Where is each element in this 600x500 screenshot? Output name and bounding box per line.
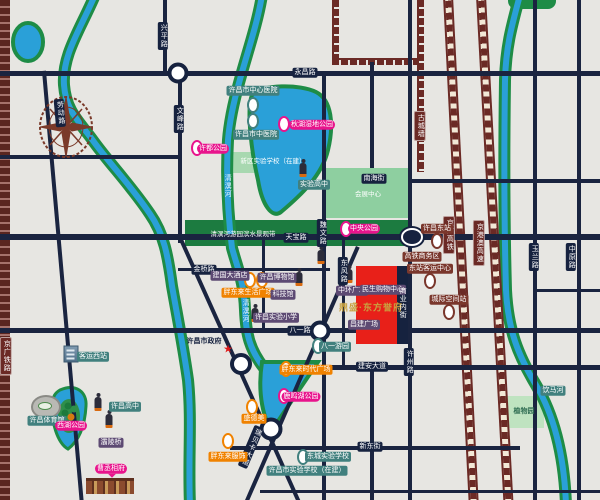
- poi-label[interactable]: 东站客运中心: [407, 264, 453, 274]
- park-trees-icon: [65, 403, 72, 410]
- poi-label[interactable]: 灞陵桥: [99, 438, 124, 448]
- poi-label[interactable]: 城际空间站: [430, 295, 469, 305]
- poi-label[interactable]: 植物园: [512, 407, 537, 417]
- road-label: 玉兰路: [529, 243, 539, 271]
- road-label: 兴平路: [158, 22, 168, 50]
- road: [533, 289, 600, 292]
- road: [260, 490, 600, 493]
- poi-label[interactable]: 许昌高中: [109, 402, 141, 412]
- river-label: 清潩河: [222, 172, 232, 200]
- government-label[interactable]: 许昌市政府: [185, 337, 224, 347]
- road-label: 中原路: [566, 243, 576, 271]
- city-wall: [417, 0, 424, 172]
- poi-label[interactable]: 许昌东站: [421, 224, 453, 234]
- shop-marker-icon[interactable]: [246, 399, 258, 415]
- station-marker-icon[interactable]: [424, 273, 436, 289]
- road-label: 天宝路: [284, 233, 309, 243]
- road: [178, 71, 182, 243]
- project-name-label[interactable]: 鼎盛·东方誉府: [337, 302, 405, 315]
- poi-label[interactable]: 高铁商务区: [403, 252, 442, 262]
- road: [408, 179, 600, 183]
- station-marker-icon[interactable]: [443, 304, 455, 320]
- statue-icon: [296, 272, 303, 286]
- compass-icon: [35, 91, 97, 163]
- poi-label[interactable]: 科技馆: [271, 290, 296, 300]
- road-label: 东风路: [338, 257, 348, 285]
- road-label: 魏文路: [317, 219, 327, 247]
- road-label: 八一路: [288, 326, 313, 336]
- poi-label[interactable]: 东城实验学校: [305, 452, 351, 462]
- poi-label[interactable]: 西湖公园: [55, 421, 87, 431]
- road: [577, 0, 581, 500]
- poi-label[interactable]: 许昌市中心医院: [227, 86, 280, 96]
- road: [408, 0, 412, 500]
- road-label: 许州路: [404, 348, 414, 376]
- poi-label[interactable]: 秋湖湿地公园: [289, 120, 335, 130]
- poi-label[interactable]: 八一游园: [319, 342, 351, 352]
- guanyu-statue-icon: [106, 414, 113, 428]
- station-marker-icon[interactable]: [431, 233, 443, 249]
- wall-label: 古城墙: [414, 111, 426, 141]
- roundabout: [230, 353, 252, 375]
- poi-label[interactable]: 昌建广场: [348, 320, 380, 330]
- roundabout: [168, 63, 189, 84]
- road: [370, 368, 374, 500]
- area-label: 清潩河游园滨水景观带: [209, 230, 278, 240]
- road-label: 新东街: [358, 442, 383, 452]
- poi-label[interactable]: 胖东来时代广场: [280, 365, 333, 375]
- poi-label[interactable]: 客运西站: [77, 352, 109, 362]
- city-map: 永昌路天宝路八一路建安大道新东街金桥路南海街兴平路劳动路文峰路魏文路东风路许州路…: [0, 0, 600, 500]
- poi-label[interactable]: 许昌市中医院: [233, 130, 279, 140]
- poi-label[interactable]: 鹿鸣湖公园: [282, 392, 321, 402]
- hospital-marker-icon[interactable]: [247, 113, 259, 129]
- train-station-icon[interactable]: [401, 228, 423, 246]
- city-wall: [332, 0, 339, 62]
- hospital-marker-icon[interactable]: [247, 97, 259, 113]
- poi-label[interactable]: 胖东来服饰: [209, 452, 248, 462]
- road-label: 南海街: [362, 174, 387, 184]
- statue-icon: [95, 397, 102, 411]
- area-label: 会展中心: [353, 190, 383, 200]
- shop-marker-icon[interactable]: [222, 433, 234, 449]
- area-label: 新区实验学校（在建）: [239, 157, 308, 167]
- poi-label[interactable]: 中央公园: [348, 224, 380, 234]
- rail-label: 京港澳高速: [473, 220, 485, 266]
- poi-label[interactable]: 建国大酒店: [211, 271, 250, 281]
- government-star-icon: ★: [223, 345, 233, 356]
- river-label: 清潩河: [240, 297, 250, 325]
- street-label: 商业内街: [397, 285, 407, 321]
- statue-icon: [318, 250, 325, 264]
- road-label: 永昌路: [293, 68, 318, 78]
- road-label: 建安大道: [356, 362, 388, 372]
- road: [322, 71, 326, 500]
- poi-label[interactable]: 许昌市实验学校（在建）: [267, 466, 348, 476]
- road: [370, 62, 374, 168]
- poi-label[interactable]: 胖东来生活广场: [222, 288, 275, 298]
- poi-label[interactable]: 曹丞相府: [95, 464, 127, 474]
- rail-label: 京广铁路: [0, 337, 12, 375]
- road-label: 文峰路: [174, 105, 184, 133]
- river-label: 饮马河: [541, 386, 566, 396]
- poi-label[interactable]: 许昌博物馆: [258, 273, 297, 283]
- poi-label[interactable]: 实验高中: [298, 180, 330, 190]
- poi-label[interactable]: 许都公园: [197, 144, 229, 154]
- rail-label: 京广高铁: [443, 216, 455, 254]
- poi-label[interactable]: 许昌实验小学: [253, 313, 299, 323]
- poi-label[interactable]: 盛德美: [242, 414, 267, 424]
